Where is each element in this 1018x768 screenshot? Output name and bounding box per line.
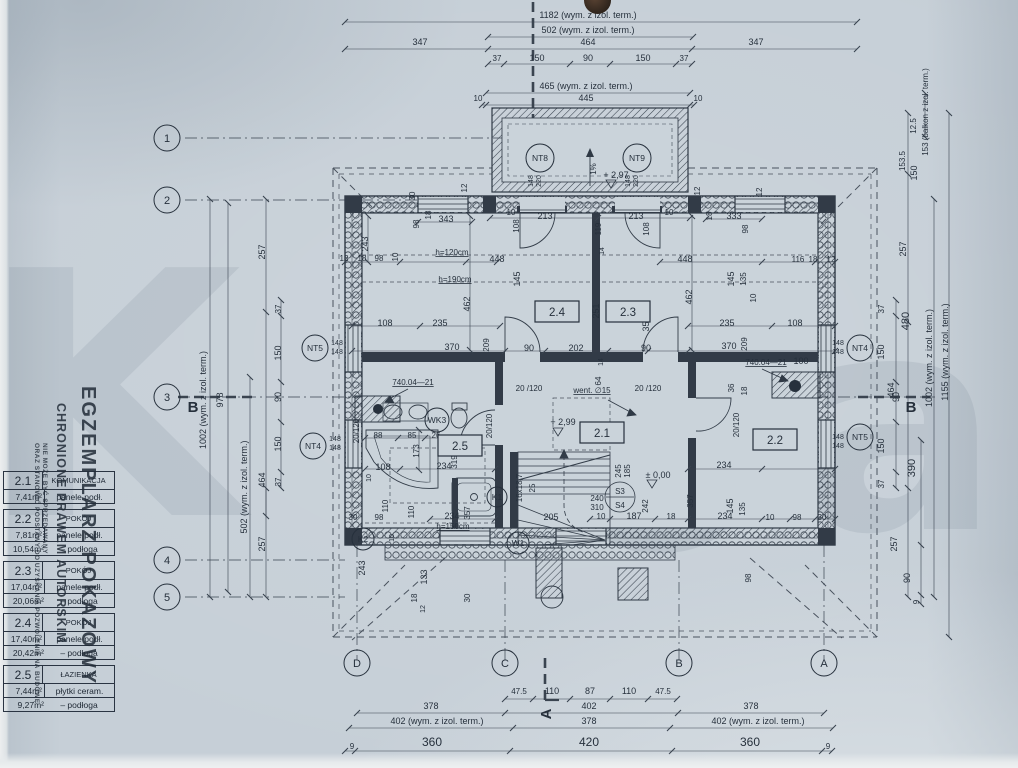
dim-label: 150 (876, 438, 886, 453)
dim-label: 30 (463, 593, 472, 602)
dim-label: 213 (537, 211, 552, 221)
dim-label: 18 (424, 210, 433, 219)
dim-label: 64 (594, 376, 603, 385)
dim-label: went. ∅15 (572, 386, 611, 395)
dim-label: 150 (876, 344, 886, 359)
room-floor: panele podł. (45, 580, 114, 593)
legend-room-2-3: 2.3POKÓJ 17,04m²panele podł. 20,06m²– po… (3, 561, 115, 608)
dim-label: 234 (444, 511, 459, 521)
dim-label: 251 (591, 303, 601, 318)
dim-label: 12 (755, 187, 764, 196)
dim-label: 464 (580, 37, 595, 47)
dim-label: 98 (744, 573, 753, 582)
dim-label: 110 (545, 686, 559, 696)
room-number: 2.3 (4, 562, 43, 579)
dim-label: 1182 (wym. z izol. term.) (539, 10, 636, 20)
dim-label: 1002 (wym. z izol. term.) (198, 351, 208, 449)
dim-label: 257 (257, 536, 267, 551)
dim-label: 370 (444, 342, 459, 352)
dim-label: 12 (420, 605, 427, 613)
dim-label: 245 (614, 464, 623, 478)
dim-label: 347 (412, 37, 427, 47)
dim-label: 148 (329, 445, 341, 452)
window-tag-label: NT8 (532, 153, 548, 163)
dim-label: 148 (832, 349, 844, 356)
dim-label: 235 (719, 318, 734, 328)
room-floor-total: – podłoga (44, 648, 114, 658)
dim-label: 1155 (wym. z izol. term.) (940, 303, 950, 400)
dim-label: 502 (wym. z izol. term.) (541, 25, 634, 35)
dim-label: ± 0,00 (646, 470, 671, 480)
room-area-total: 10,54m² (4, 544, 44, 554)
dim-label: 20 /120 (635, 384, 662, 393)
dim-label: 18 (705, 211, 714, 220)
dim-label: 257 (898, 241, 908, 256)
dim-label: 98 (741, 224, 750, 233)
room-floor: płytki ceram. (45, 684, 114, 697)
dim-label: 12 (693, 186, 702, 195)
dim-label: 18 (740, 386, 749, 395)
dim-label: 98 (793, 513, 802, 522)
dim-label: 202 (568, 343, 583, 353)
dim-label: 37 (274, 304, 283, 313)
dim-label: 108 (377, 318, 392, 328)
dim-label: 10 (749, 293, 758, 302)
dim-label: 108 (512, 219, 521, 233)
dim-label: 235 (432, 318, 447, 328)
dim-label: 360 (422, 735, 442, 749)
dim-label: 150 (635, 53, 650, 63)
dim-label: S4 (615, 501, 625, 510)
section-mark-letter: B (906, 399, 917, 416)
dim-label: 420 (579, 735, 599, 749)
dim-label: 108 (642, 222, 651, 236)
dim-label: 257 (257, 244, 267, 259)
dim-label: 402 (wym. z izol. term.) (390, 716, 483, 726)
floor-plan-drawing: 1182 (wym. z izol. term.)502 (wym. z izo… (0, 0, 1018, 768)
dim-label: 148 (832, 443, 844, 450)
dim-label: 10 (694, 94, 703, 103)
dim-label: 37 (274, 477, 283, 486)
dim-label: 12 (460, 183, 469, 192)
room-area: 7,44m² (4, 684, 45, 697)
room-area: 17,40m² (4, 632, 45, 645)
room-area-total: 20,06m² (4, 596, 44, 606)
paper-edge-bottom (0, 753, 1018, 768)
dim-label: 98 (412, 219, 421, 228)
room-label: 2.5 (452, 441, 468, 453)
room-name: KOMUNIKACJA (43, 472, 114, 489)
dim-label: 133 (419, 569, 429, 584)
dim-label: 145 (726, 271, 736, 286)
dim-label: 978 (215, 392, 225, 407)
room-floor: panele podł. (45, 528, 114, 541)
dim-label: 343 (438, 214, 453, 224)
room-area-total: 9,27m² (4, 700, 44, 710)
dim-label: 110 (622, 686, 636, 696)
dim-label: 402 (581, 701, 596, 711)
dim-label: 243 (360, 236, 370, 251)
dim-label: 187 (626, 511, 641, 521)
scanned-floor-plan-photo: { "watermark": { "line1": "EGZEMPLARZ PO… (0, 0, 1018, 768)
dim-label: 10 (366, 474, 373, 482)
window-tag-label: K1 (492, 492, 503, 502)
grid-col-label: C (501, 658, 509, 670)
dim-label: 148 (329, 436, 341, 443)
dim-label: 243 (357, 560, 367, 575)
dim-label: 116 (792, 255, 805, 264)
dim-label: 148 (331, 340, 343, 347)
room-label: 2.3 (620, 307, 636, 319)
dim-label: 18 (809, 255, 818, 264)
room-name: POKÓJ (43, 510, 114, 527)
dim-label: 87 (585, 686, 595, 696)
section-mark-letter: B (188, 399, 199, 416)
dim-label: 47.5 (511, 687, 527, 696)
dim-label: 100 (793, 356, 808, 366)
room-area-total: 20,42m² (4, 648, 44, 658)
window-tag-label: K2 (358, 534, 369, 544)
dim-label: 220 (536, 175, 543, 187)
room-label: 2.1 (594, 428, 610, 440)
dim-label: 9 (350, 742, 355, 751)
dim-label: 357 (686, 494, 695, 508)
dim-label: 90 (902, 573, 912, 583)
dim-label: 378 (581, 716, 596, 726)
dim-label: 98 (375, 254, 384, 263)
room-number: 2.1 (4, 472, 43, 489)
dim-label: 310 (590, 503, 604, 512)
dim-label: 205 (543, 512, 558, 522)
dim-label: 18 (410, 593, 419, 602)
dim-label: 110 (407, 505, 416, 518)
dim-label: 173 (412, 444, 421, 458)
dim-label: 150 (909, 165, 919, 180)
dim-label: 740.04—21 (745, 358, 787, 367)
dim-label: 85 (408, 431, 417, 440)
dim-label: 18 (358, 254, 367, 263)
dim-label: 1002 (wym. z izol. term.) (924, 309, 934, 407)
room-number: 2.2 (4, 510, 43, 527)
dim-label: 20 /120 (516, 384, 543, 393)
dim-label: 20/120 (732, 412, 741, 437)
dim-label: 445 (578, 93, 593, 103)
dim-label: 333 (726, 211, 741, 221)
section-mark-letter: A (538, 708, 555, 719)
dim-label: 135 (739, 272, 748, 286)
dim-label: 462 (684, 289, 694, 304)
dim-label: 12.5 (909, 118, 918, 134)
room-area: 7,81m² (4, 528, 45, 541)
dim-label: 448 (677, 254, 692, 264)
dim-label: 148 (331, 349, 343, 356)
dim-label: 47.5 (655, 687, 671, 696)
window-tag-label: NT4 (852, 343, 868, 353)
dim-label: 10 (766, 513, 775, 522)
room-floor: panele podł. (45, 632, 114, 645)
room-label: 2.4 (549, 307, 566, 319)
room-number: 2.5 (4, 666, 43, 683)
room-name: POKÓJ (43, 562, 114, 579)
dim-label: 448 (489, 254, 504, 264)
dim-label: 37 (680, 54, 689, 63)
dim-label: 110 (381, 499, 390, 512)
dim-label: h=190cm (438, 275, 471, 284)
dim-label: 16x18,7 (515, 473, 524, 502)
dim-label: 9 (912, 599, 921, 604)
dim-label: 108 (375, 462, 390, 472)
dim-label: 153.5 (898, 150, 907, 171)
dim-label: 25 (528, 483, 537, 492)
dim-label: h=150cm (436, 522, 469, 531)
dim-label: 148 (528, 175, 535, 187)
dim-label: 90 (524, 343, 534, 353)
dim-label: 402 (wym. z izol. term.) (711, 716, 804, 726)
dim-label: 10 (665, 208, 674, 217)
grid-col-label: A (820, 658, 828, 670)
dim-label: 319 (450, 455, 459, 469)
legend-room-2-4: 2.4POKÓJ 17,40m²panele podł. 20,42m²– po… (3, 613, 115, 660)
dim-label: 90 (891, 392, 901, 402)
dim-label: 234 (716, 460, 731, 470)
dim-label: 36 (727, 383, 736, 392)
dim-label: 150 (273, 345, 283, 360)
dim-label: 357 (463, 506, 472, 520)
dim-label: 360 (740, 735, 760, 749)
grid-row-label: 1 (164, 133, 170, 145)
dim-label: h=120cm (435, 248, 468, 257)
legend-room-2-2: 2.2POKÓJ 7,81m²panele podł. 10,54m²– pod… (3, 509, 115, 556)
room-floor-total: – podłoga (44, 544, 114, 554)
dim-label: 464 (257, 472, 267, 487)
legend-room-2-5: 2.5ŁAZIENKA 7,44m²płytki ceram. 9,27m²– … (3, 665, 115, 712)
window-tag-label: NT4 (305, 441, 321, 451)
dim-label: 1% (589, 163, 598, 175)
dim-label: 347 (748, 37, 763, 47)
dim-label: 502 (wym. z izol. term.) (239, 440, 249, 533)
dim-label: 145 (725, 498, 735, 513)
dim-label: 12 (827, 255, 836, 264)
dim-label: 150 (273, 436, 283, 451)
dim-label: 145 (512, 271, 522, 286)
dim-label: 30 (818, 513, 827, 522)
room-floor: panele podł. (45, 490, 114, 503)
room-floor-total: – podłoga (44, 700, 114, 710)
grid-row-label: 3 (164, 392, 170, 404)
dim-label: 12 (340, 254, 349, 263)
dim-label: 30 (349, 513, 358, 522)
dim-label: 108 (787, 318, 802, 328)
dim-label: 153 (balkon z izol. term.) (921, 68, 930, 156)
dim-label: 257 (889, 536, 899, 551)
legend-room-2-1: 2.1KOMUNIKACJA 7,41m²panele podł. (3, 471, 115, 504)
grid-col-label: B (675, 658, 682, 670)
dim-label: 10 (597, 512, 606, 521)
dim-label: 37 (877, 479, 886, 488)
dim-label: 10 (507, 208, 516, 217)
window-tag-label: NT5 (852, 432, 868, 442)
dim-label: 209 (482, 338, 491, 352)
dim-label: 90 (273, 392, 283, 402)
dim-label: 10 (474, 94, 483, 103)
dim-label: 88 (374, 431, 383, 440)
dim-label: 9 (826, 742, 831, 751)
room-number: 2.4 (4, 614, 43, 631)
exterior-walls (345, 196, 835, 545)
grid-col-label: D (353, 658, 361, 670)
dim-label: 90 (641, 343, 651, 353)
dim-label: 370 (721, 341, 736, 351)
grid-row-label: 5 (164, 592, 170, 604)
room-area: 17,04m² (4, 580, 45, 593)
dim-label: 20/120 (352, 418, 361, 443)
dim-label: 465 (wym. z izol. term.) (539, 81, 632, 91)
dim-label: 18 (667, 512, 676, 521)
dim-label: 10 (389, 534, 396, 542)
dim-label: 209 (740, 337, 749, 351)
dim-label: 20/120 (485, 413, 494, 438)
room-label: 2.2 (767, 435, 783, 447)
dim-label: 462 (462, 296, 472, 311)
dim-label: 148 (625, 175, 632, 187)
balcony (492, 108, 688, 192)
dim-label: 378 (423, 701, 438, 711)
dim-label: 390 (906, 459, 918, 477)
dim-label: 37 (877, 304, 886, 313)
room-floor-total: – podłoga (44, 596, 114, 606)
room-name: ŁAZIENKA (43, 666, 114, 683)
grid-row-label: 4 (164, 555, 170, 567)
dim-label: 148 (832, 434, 844, 441)
dim-label: 213 (628, 211, 643, 221)
grid-row-label: 2 (164, 195, 170, 207)
window-tag-label: NT9 (629, 153, 645, 163)
dim-label: 37 (493, 54, 502, 63)
dim-label: 14 (599, 247, 606, 255)
dim-label: + 2,99 (550, 417, 575, 427)
dim-label: 240 (590, 494, 604, 503)
room-area: 7,41m² (4, 490, 45, 503)
dim-label: 14 (598, 358, 605, 366)
dim-label: 148 (832, 340, 844, 347)
dim-label: 378 (743, 701, 758, 711)
dim-label: 150 (529, 53, 544, 63)
dim-label: 740.04—21 (392, 378, 434, 387)
room-name: POKÓJ (43, 614, 114, 631)
dim-label: 135 (738, 502, 747, 516)
dim-label: 220 (633, 175, 640, 187)
dim-label: 98 (375, 513, 384, 522)
dim-label: 480 (900, 312, 912, 330)
dim-label: 185 (623, 464, 632, 478)
dim-label: S3 (615, 487, 625, 496)
room-legend-table: 2.1KOMUNIKACJA 7,41m²panele podł. 2.2POK… (3, 471, 115, 717)
dim-label: 242 (641, 499, 650, 513)
window-tag-label: WK3 (428, 415, 447, 425)
window-tag-label: NT5 (307, 343, 323, 353)
dim-label: 119 (594, 222, 603, 235)
window-tag-label: W1 (512, 538, 525, 548)
dim-label: 10 (391, 252, 400, 261)
dim-label: 90 (583, 53, 593, 63)
dim-label: 30 (408, 191, 417, 200)
